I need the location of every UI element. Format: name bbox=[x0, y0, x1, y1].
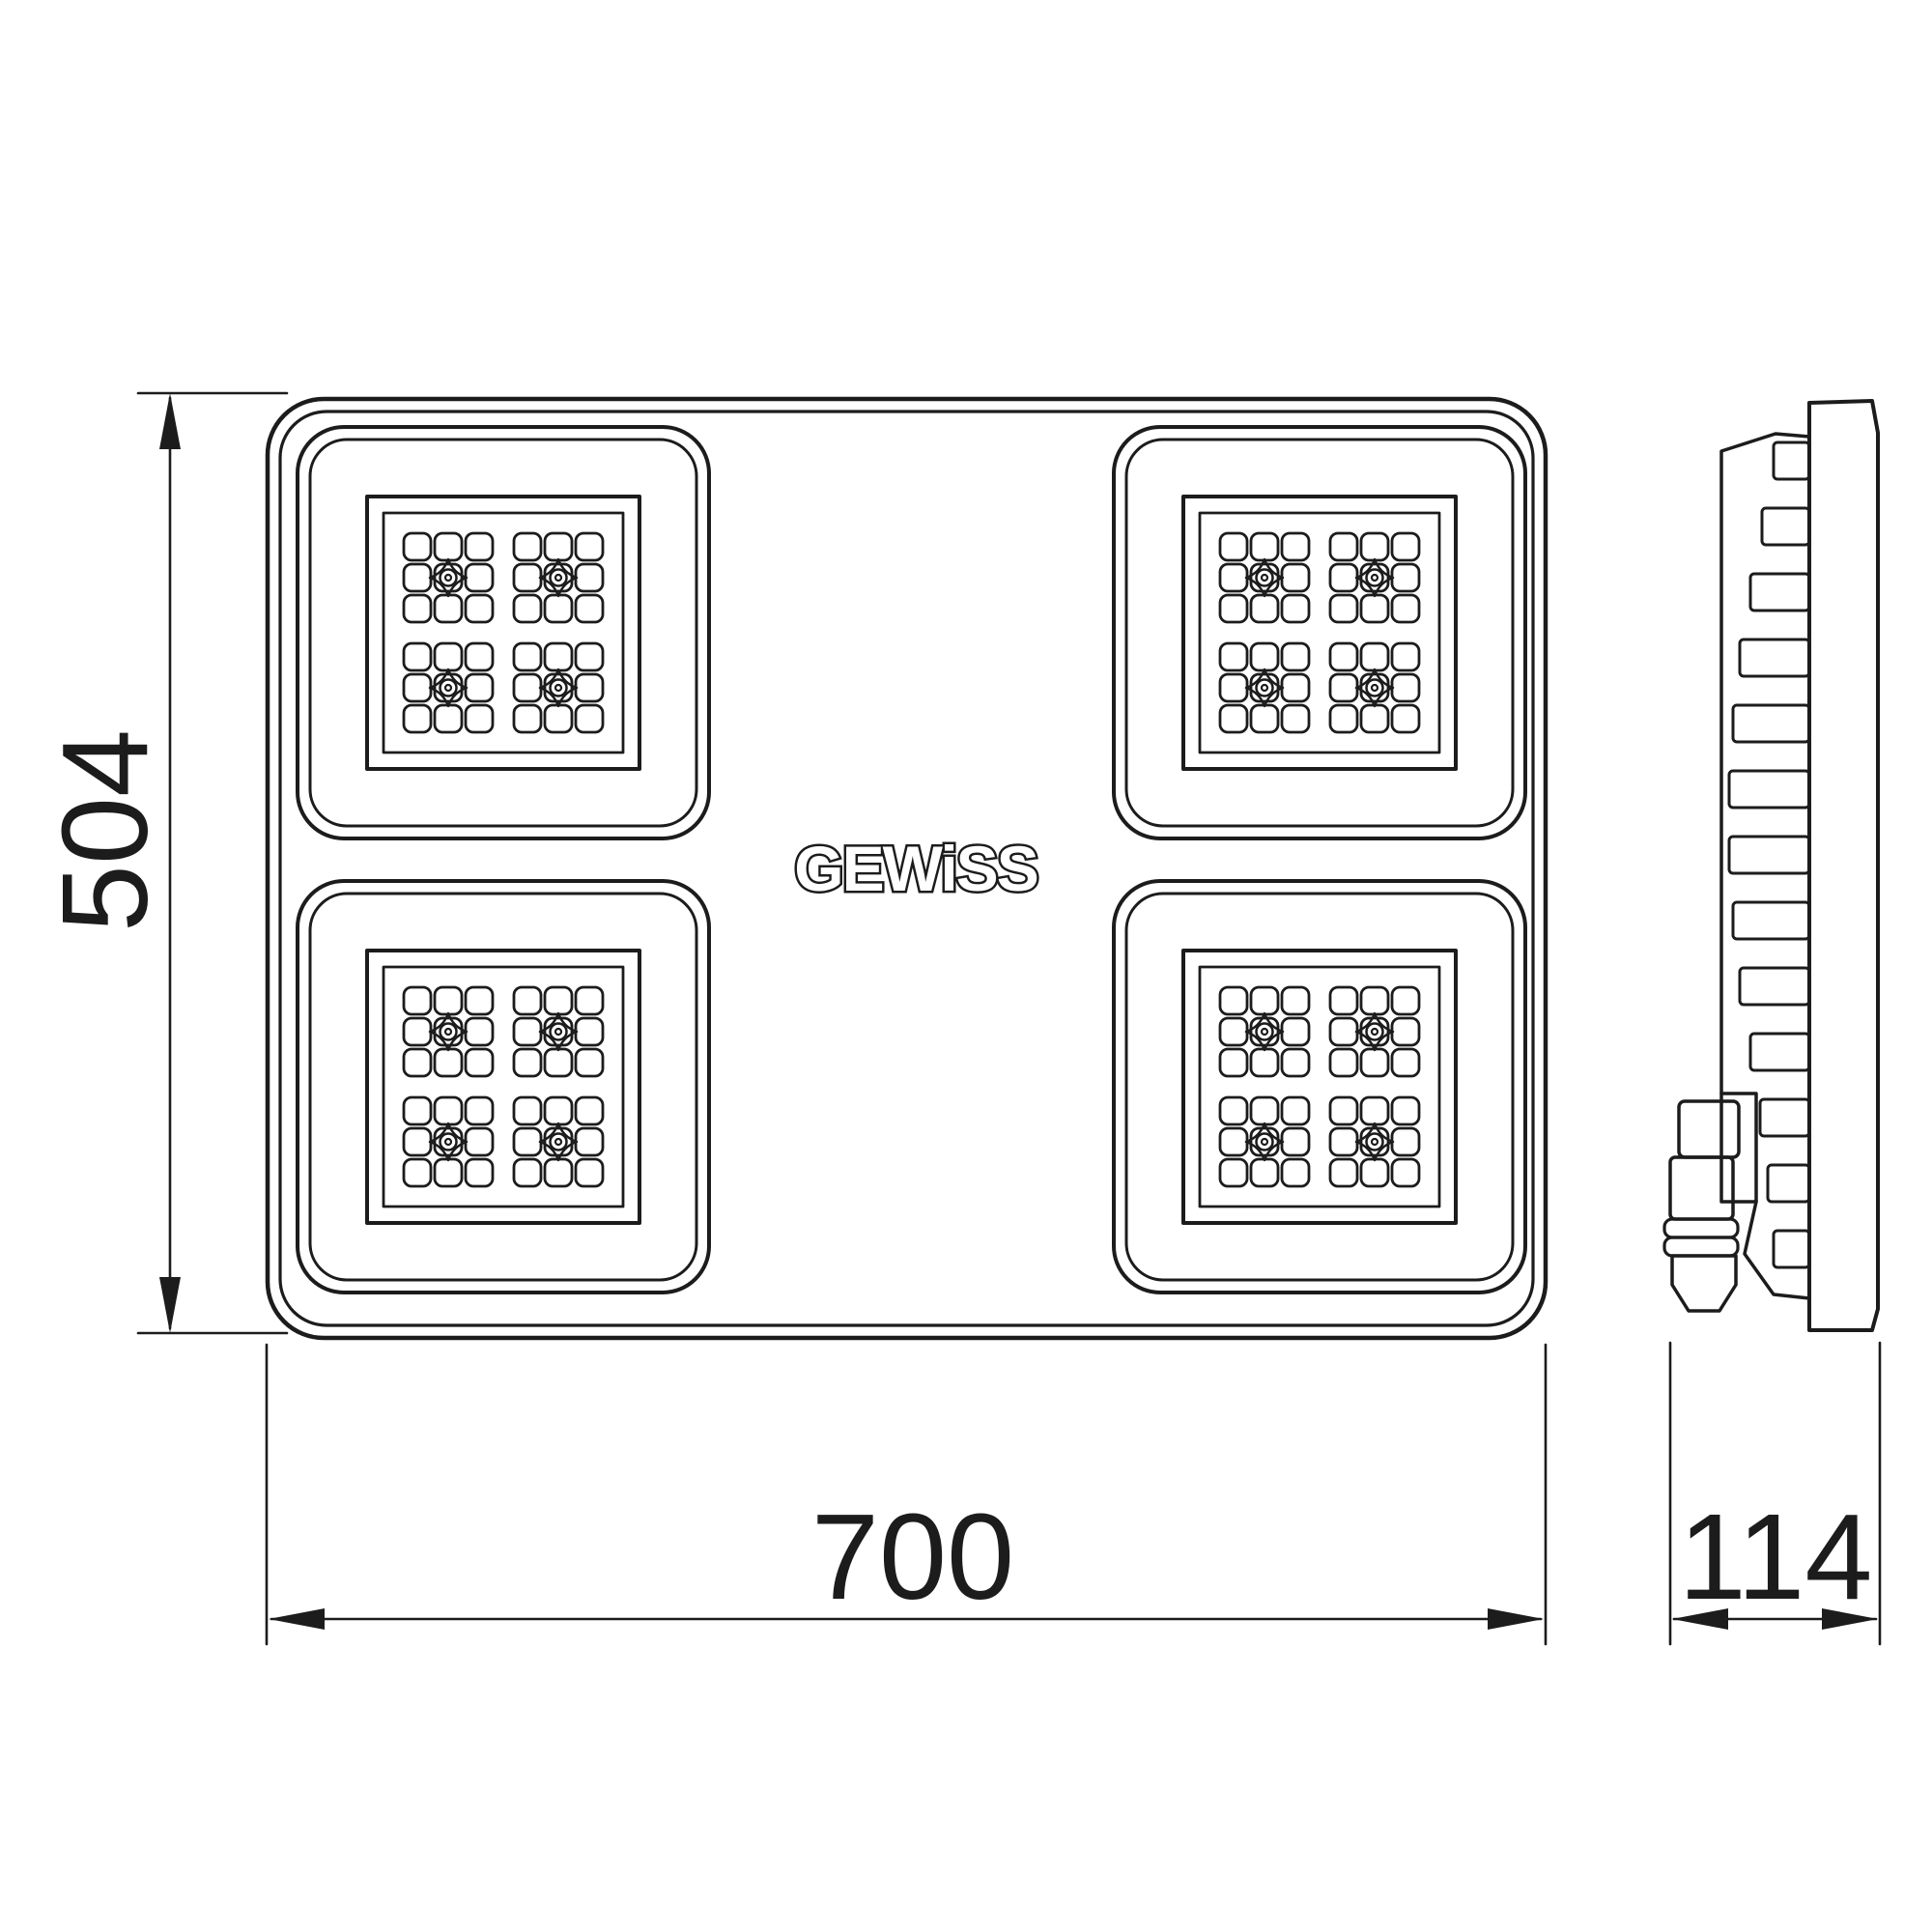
arrowhead-right-icon bbox=[1488, 1608, 1544, 1630]
led-module-bottom-right bbox=[1114, 881, 1525, 1293]
side-body-top-outline bbox=[1721, 434, 1809, 1094]
dimension-width: 700 bbox=[267, 1345, 1546, 1644]
dimension-height: 504 bbox=[37, 393, 287, 1333]
front-view: GEWiSS bbox=[268, 399, 1546, 1338]
led-module-bottom-left bbox=[298, 881, 709, 1293]
width-dimension-label: 700 bbox=[811, 1489, 1014, 1625]
arrowhead-down-icon bbox=[159, 1277, 181, 1333]
cable-gland bbox=[1664, 1101, 1739, 1311]
gewiss-logo: GEWiSS bbox=[794, 833, 1037, 904]
depth-dimension-label: 114 bbox=[1679, 1489, 1873, 1625]
heatsink-fins bbox=[1729, 442, 1809, 1267]
led-module-top-left bbox=[298, 427, 709, 838]
floodlight-dimension-drawing: GEWiSS bbox=[0, 0, 1932, 1932]
height-dimension-label: 504 bbox=[37, 729, 173, 932]
led-module-top-right bbox=[1114, 427, 1525, 838]
side-body-bottom-outline bbox=[1745, 1202, 1809, 1298]
technical-drawing-page: GEWiSS bbox=[0, 0, 1932, 1932]
side-view bbox=[1664, 401, 1878, 1330]
arrowhead-up-icon bbox=[159, 393, 181, 449]
side-front-plate bbox=[1809, 401, 1878, 1330]
dimension-depth: 114 bbox=[1670, 1343, 1880, 1644]
arrowhead-left-icon bbox=[269, 1608, 325, 1630]
